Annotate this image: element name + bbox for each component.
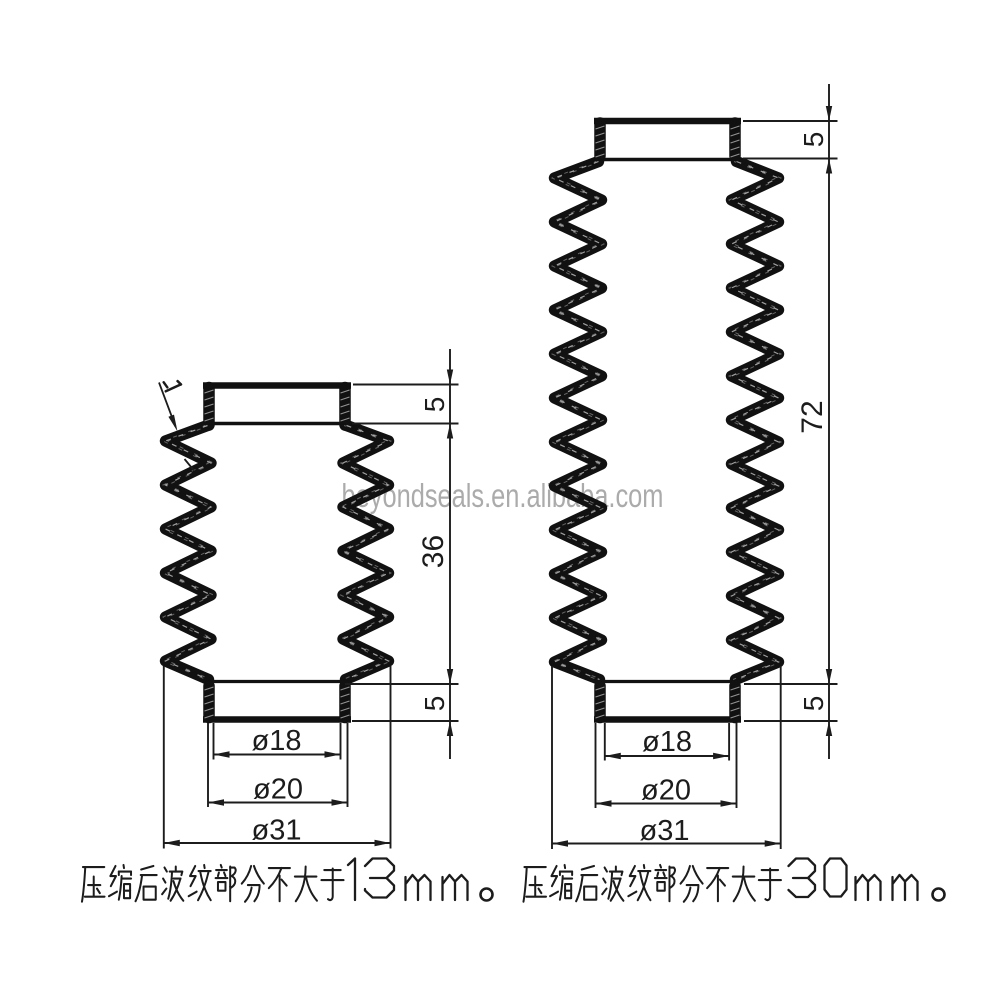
svg-text:ø20: ø20 xyxy=(253,774,303,806)
svg-text:ø31: ø31 xyxy=(640,815,690,847)
svg-text:ø20: ø20 xyxy=(641,775,691,807)
svg-text:36: 36 xyxy=(417,535,450,568)
svg-text:5: 5 xyxy=(419,397,450,413)
svg-text:5: 5 xyxy=(798,132,829,148)
svg-text:5: 5 xyxy=(798,696,829,712)
svg-text:ø31: ø31 xyxy=(252,815,302,847)
svg-text:ø18: ø18 xyxy=(252,725,302,757)
svg-text:72: 72 xyxy=(796,400,829,433)
svg-text:5: 5 xyxy=(419,696,450,712)
svg-text:ø18: ø18 xyxy=(642,726,692,758)
